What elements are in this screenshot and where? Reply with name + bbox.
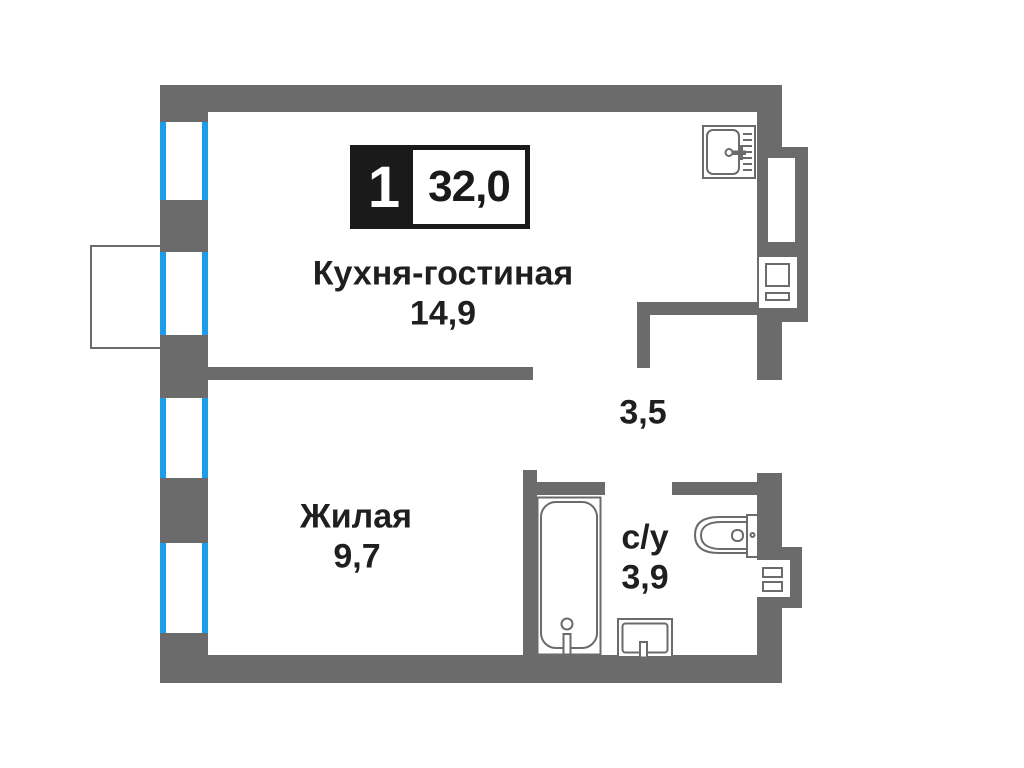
bathroom-name: с/у bbox=[621, 519, 668, 558]
wall-partition-kitchen-living bbox=[208, 367, 533, 380]
bathroom-area: 3,9 bbox=[621, 559, 668, 598]
window-icon bbox=[160, 543, 208, 633]
wall-left-pier-2 bbox=[160, 335, 208, 398]
wall-bathroom-top-right bbox=[672, 482, 757, 495]
plan-badge: 1 32,0 bbox=[350, 145, 530, 229]
wall-top bbox=[160, 85, 782, 112]
vent-shaft-icon bbox=[765, 263, 790, 287]
floor-plan: 1 32,0 Кухня-гостиная 14,9 Жилая 9,7 3,5… bbox=[0, 0, 1024, 768]
kitchen-vent-shaft bbox=[757, 257, 797, 308]
kitchen-living-area: 14,9 bbox=[410, 295, 476, 334]
wall-left-top-corner bbox=[160, 85, 208, 122]
kitchen-living-name: Кухня-гостиная bbox=[313, 255, 573, 294]
total-area-badge: 32,0 bbox=[413, 150, 525, 224]
entry-niche bbox=[768, 158, 795, 242]
vent-shaft-icon bbox=[762, 581, 783, 592]
wall-bottom bbox=[160, 655, 782, 683]
wall-hallway-top bbox=[637, 302, 757, 315]
room-count-badge: 1 bbox=[355, 150, 413, 224]
wall-left-pier-1 bbox=[160, 200, 208, 252]
living-name: Жилая bbox=[300, 498, 412, 537]
wall-hallway-stub bbox=[637, 302, 650, 368]
bathroom-vent-shaft bbox=[757, 560, 790, 597]
wall-bathroom-top-left bbox=[523, 482, 605, 495]
window-icon bbox=[160, 122, 208, 200]
vent-shaft-icon bbox=[765, 292, 790, 301]
washbasin-icon bbox=[616, 617, 674, 659]
wall-bathroom-left bbox=[523, 470, 537, 683]
window-icon bbox=[160, 398, 208, 478]
wall-left-pier-3 bbox=[160, 478, 208, 543]
hallway-area: 3,5 bbox=[619, 394, 666, 433]
toilet-icon bbox=[693, 513, 759, 559]
bathtub-icon bbox=[536, 496, 602, 656]
window-icon bbox=[160, 252, 208, 335]
kitchen-sink-icon bbox=[702, 125, 756, 179]
balcony-outline bbox=[90, 245, 164, 349]
living-area: 9,7 bbox=[333, 538, 380, 577]
vent-shaft-icon bbox=[762, 567, 783, 578]
